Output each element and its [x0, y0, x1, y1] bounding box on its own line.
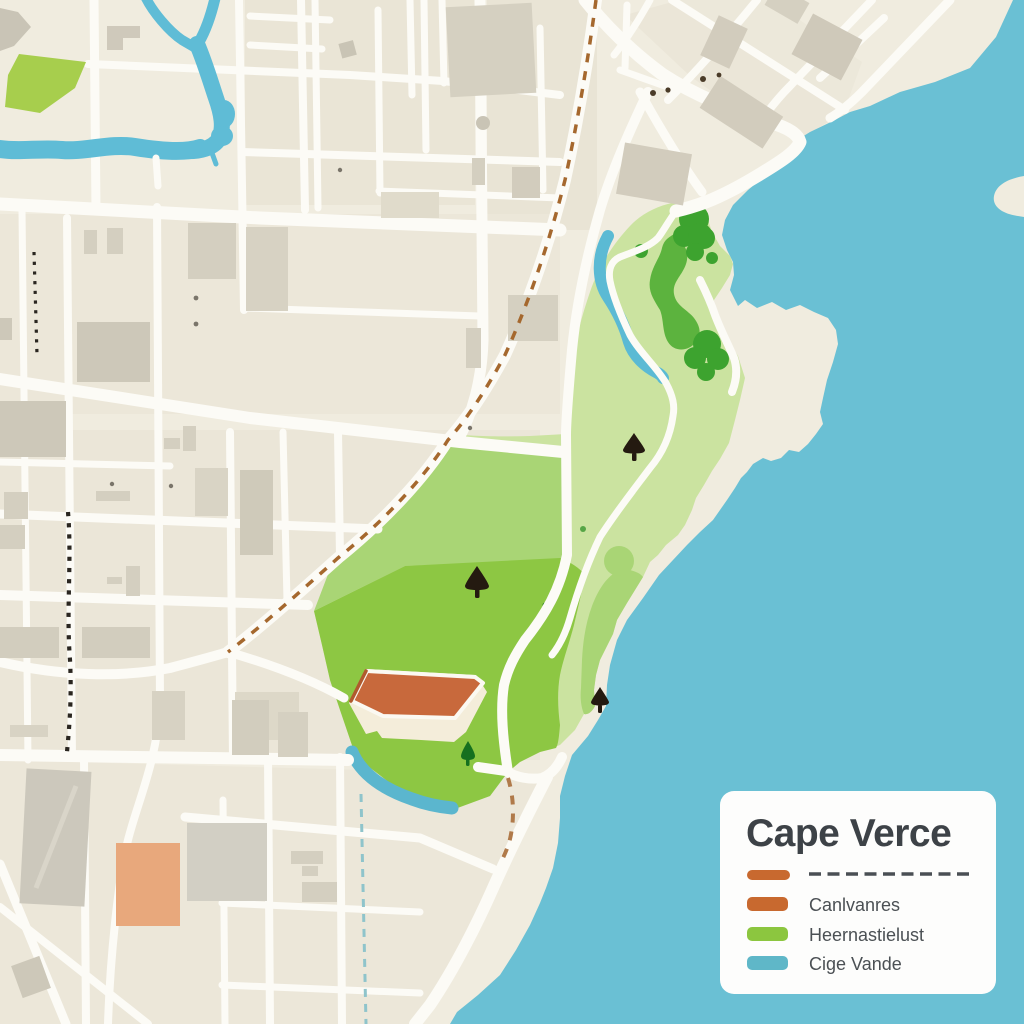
svg-text:Canlvanres: Canlvanres — [809, 895, 900, 915]
svg-text:Cape Verce: Cape Verce — [746, 812, 951, 855]
svg-text:Heernastielust: Heernastielust — [809, 925, 924, 945]
svg-text:Cige Vande: Cige Vande — [809, 954, 902, 974]
